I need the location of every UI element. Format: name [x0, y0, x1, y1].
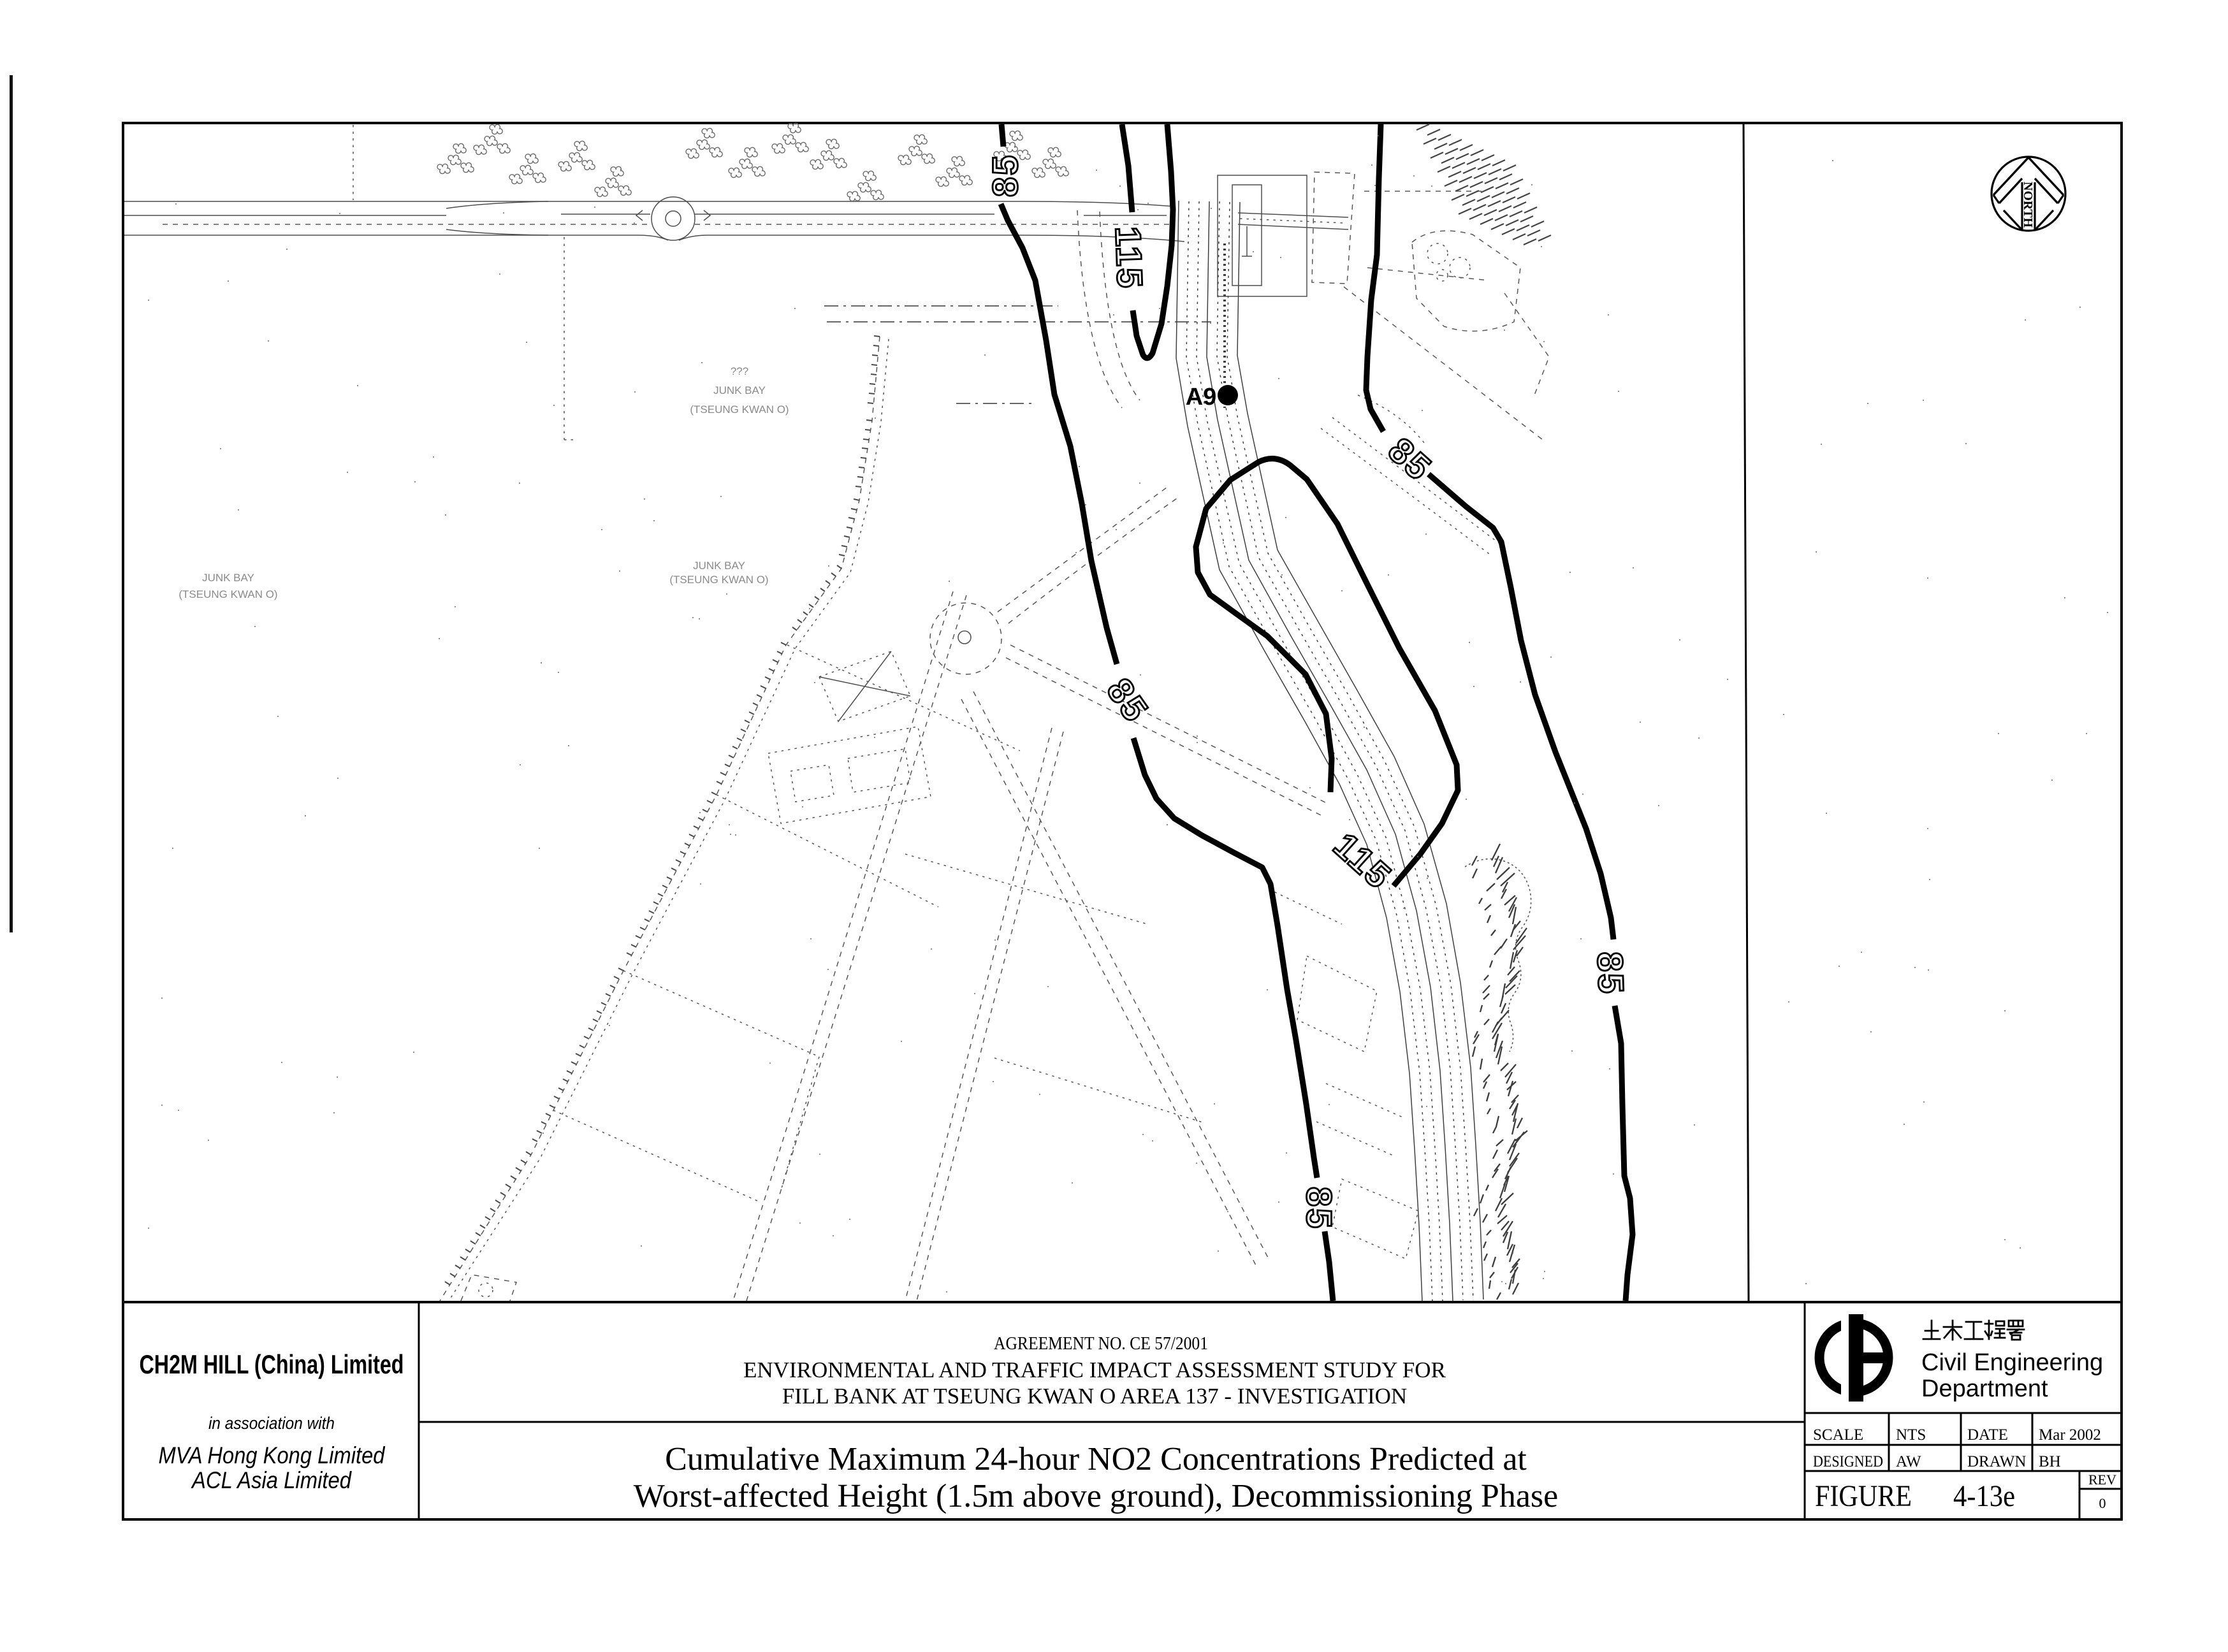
svg-text:(TSEUNG KWAN O): (TSEUNG KWAN O): [669, 574, 768, 586]
svg-text:CH2M HILL (China) Limited: CH2M HILL (China) Limited: [140, 1349, 404, 1379]
svg-text:in association with: in association with: [208, 1414, 335, 1433]
svg-text:(TSEUNG KWAN O): (TSEUNG KWAN O): [178, 588, 277, 600]
svg-text:NORTH: NORTH: [2021, 182, 2035, 228]
svg-text:DRAWN: DRAWN: [1967, 1453, 2026, 1470]
svg-text:BH: BH: [2039, 1453, 2061, 1470]
svg-text:AW: AW: [1896, 1453, 1921, 1470]
svg-text:(TSEUNG KWAN O): (TSEUNG KWAN O): [690, 403, 789, 416]
svg-text:REV: REV: [2088, 1472, 2116, 1488]
svg-text:Mar 2002: Mar 2002: [2039, 1426, 2101, 1444]
svg-text:85: 85: [1299, 1187, 1339, 1230]
svg-text:???: ???: [731, 365, 748, 377]
svg-text:DATE: DATE: [1967, 1426, 2008, 1444]
svg-text:4-13e: 4-13e: [1953, 1479, 2015, 1513]
svg-text:0: 0: [2099, 1495, 2106, 1511]
svg-text:A9: A9: [1186, 384, 1217, 410]
svg-text:Civil Engineering: Civil Engineering: [1921, 1349, 2103, 1376]
svg-text:DESIGNED: DESIGNED: [1813, 1453, 1883, 1470]
svg-text:JUNK BAY: JUNK BAY: [713, 384, 766, 396]
svg-text:MVA Hong Kong Limited: MVA Hong Kong Limited: [159, 1442, 386, 1468]
svg-text:Cumulative Maximum 24-hour NO2: Cumulative Maximum 24-hour NO2 Concentra…: [665, 1441, 1527, 1477]
svg-text:Worst-affected Height (1.5m ab: Worst-affected Height (1.5m above ground…: [634, 1478, 1559, 1514]
svg-text:JUNK BAY: JUNK BAY: [693, 560, 745, 572]
svg-text:JUNK BAY: JUNK BAY: [202, 572, 254, 584]
svg-text:FIGURE: FIGURE: [1815, 1479, 1912, 1513]
svg-text:85: 85: [985, 154, 1025, 197]
svg-text:85: 85: [1590, 951, 1631, 996]
svg-text:SCALE: SCALE: [1813, 1426, 1863, 1444]
svg-text:ENVIRONMENTAL AND TRAFFIC IMPA: ENVIRONMENTAL AND TRAFFIC IMPACT ASSESSM…: [743, 1358, 1446, 1382]
svg-text:FILL BANK AT TSEUNG KWAN O ARE: FILL BANK AT TSEUNG KWAN O AREA 137 - IN…: [782, 1384, 1407, 1409]
svg-text:NTS: NTS: [1896, 1426, 1926, 1444]
svg-text:AGREEMENT NO. CE 57/2001: AGREEMENT NO. CE 57/2001: [994, 1334, 1208, 1354]
svg-text:Department: Department: [1921, 1375, 2048, 1402]
svg-text:115: 115: [1108, 226, 1150, 290]
svg-text:ACL Asia Limited: ACL Asia Limited: [191, 1467, 352, 1493]
